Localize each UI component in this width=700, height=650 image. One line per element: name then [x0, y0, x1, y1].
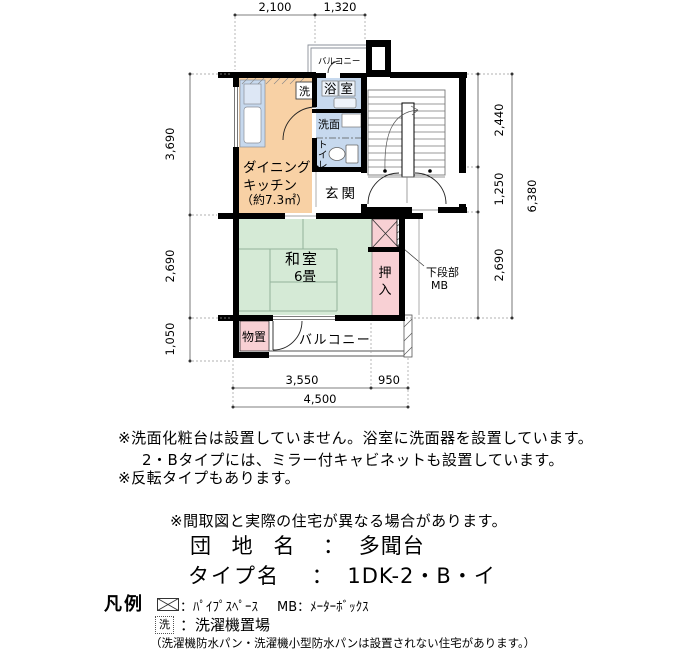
upper-balcony-label: バルコニー	[318, 57, 360, 67]
bath-label: 浴室	[324, 81, 357, 96]
pipe-space-desc: ：ﾊﾟｲﾌﾟｽﾍﾟｰｽ	[180, 596, 258, 615]
type-name: 1DK-2・B・イ	[347, 564, 495, 588]
laundry-legend-icon: 洗	[155, 616, 174, 634]
dim-bottom-1: 3,550	[286, 373, 319, 387]
cooktop	[244, 84, 261, 104]
storage-label: 物置	[242, 330, 266, 344]
closet-label-1: 押	[378, 266, 391, 281]
bathtub	[334, 98, 356, 108]
note-line-1: ※洗面化粧台は設置していません。浴室に洗面器を設置しています。	[118, 427, 593, 448]
dim-top-2: 1,320	[324, 0, 357, 14]
dim-right-3: 2,690	[492, 249, 506, 282]
washbasin-label: 洗面	[318, 118, 340, 131]
sink	[244, 107, 261, 143]
meter-box-desc: MB：ﾒｰﾀｰﾎﾞｯｸｽ	[277, 596, 369, 615]
mb-note-line2: MB	[431, 279, 448, 292]
estate-colon: ：	[323, 534, 345, 558]
note-line-3: ※反転タイプもあります。	[118, 467, 300, 488]
estate-label: 団 地 名	[190, 534, 301, 558]
dim-right-2: 1,250	[492, 173, 506, 206]
legend-title: 凡例	[104, 590, 144, 616]
laundry-space: 洗	[296, 82, 313, 99]
mb-note-line1: 下段部	[426, 265, 459, 279]
kitchen-counter	[240, 80, 265, 147]
entry-doors	[368, 173, 446, 210]
stair-dot-right	[428, 169, 432, 173]
toilet-tank	[346, 145, 358, 163]
washitsu-size-label: 6畳	[294, 269, 316, 285]
balcony-door-arc	[273, 321, 302, 350]
washbasin	[342, 114, 361, 127]
floor-plan-page: 洗 浴室 洗面 ト イ レ	[0, 0, 700, 650]
dim-top-1: 2,100	[259, 0, 292, 14]
dim-left-3: 1,050	[163, 323, 177, 356]
stair-dot-left	[383, 169, 387, 173]
estate-name-row: 団 地 名 ： 多聞台	[190, 530, 425, 560]
laundry-desc: ：洗濯機置場	[180, 614, 270, 635]
estate-name: 多聞台	[359, 534, 425, 558]
entry-door-arc-left	[368, 173, 399, 204]
dim-left-2: 2,690	[163, 250, 177, 283]
laundry-label: 洗	[299, 85, 310, 98]
type-name-row: タイプ名 ： 1DK-2・B・イ	[188, 560, 496, 590]
dk-label-2: キッチン	[243, 178, 297, 194]
type-colon: ：	[312, 564, 334, 588]
closet-label-2: 入	[378, 283, 391, 298]
dim-bottom-total: 4,500	[304, 392, 337, 406]
washitsu-label: 和室	[285, 250, 319, 268]
dk-label-3: （約7.3㎡）	[241, 192, 308, 207]
duct-shaft-inner	[372, 47, 385, 70]
mb-leader-line	[404, 249, 424, 266]
pipe-space-box	[372, 219, 399, 248]
dim-left-1: 3,690	[163, 128, 177, 161]
floor-plan-drawing: 洗 浴室 洗面 ト イ レ	[0, 0, 700, 420]
entry-door-arc-right	[415, 173, 446, 204]
pipe-space-icon	[157, 598, 179, 611]
staircase	[368, 90, 445, 177]
disclaimer: ※間取図と実際の住宅が異なる場合があります。	[170, 510, 507, 531]
dim-right-1: 2,440	[492, 104, 506, 137]
dim-bottom-2: 950	[378, 373, 400, 387]
balcony-label: バルコニー	[299, 333, 371, 348]
dk-label-1: ダイニング・	[243, 160, 324, 176]
dim-right-total: 6,380	[525, 180, 539, 213]
entrance-label: 玄関	[325, 185, 358, 202]
type-label: タイプ名	[188, 564, 280, 588]
laundry-note: （洗濯機防水パン・洗濯機小型防水パンは設置されない住宅があります。）	[150, 635, 535, 650]
toilet-bowl	[329, 148, 345, 161]
